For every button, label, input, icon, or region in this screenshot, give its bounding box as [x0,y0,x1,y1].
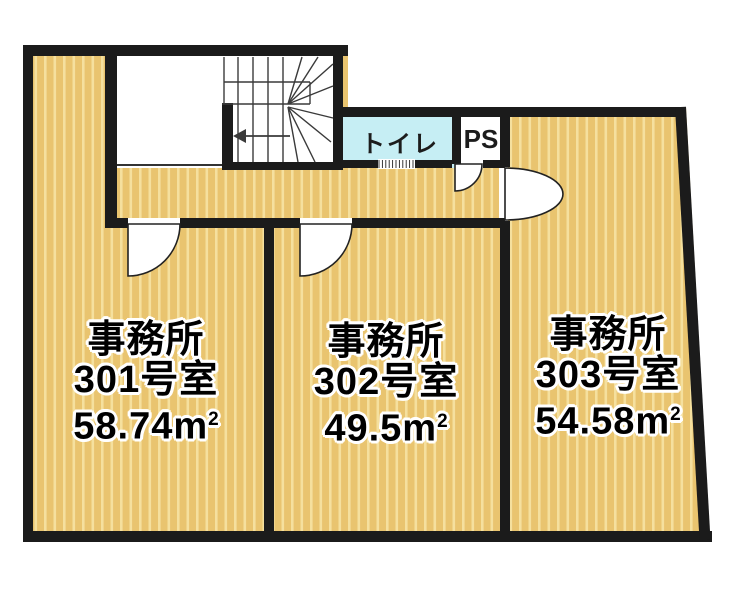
wall-toilet-bottom-right [414,160,452,168]
wall-stairwell-right [333,45,343,168]
floorplan-page: 事務所 301号室 58.74m2 事務所 302号室 49.5m2 事務所 3… [0,0,735,600]
room-301-area: 58.74m2 [26,400,266,447]
ps-label: PS [457,124,505,155]
room-302-number: 302号室 [266,362,506,402]
room-302-area: 49.5m2 [266,402,506,449]
wall-stair-bottom [222,162,343,170]
wall-bottom [23,531,712,542]
floorplan-drawing [0,0,735,600]
wall-hallway-seg1 [105,218,128,228]
room-302-label: 事務所 302号室 49.5m2 [266,322,506,449]
wall-left [23,45,33,542]
room-303-label: 事務所 303号室 54.58m2 [488,315,728,442]
wall-top [23,45,348,56]
toilet-threshold [378,159,415,169]
room-301-number: 301号室 [26,360,266,400]
room-303-type: 事務所 [488,315,728,355]
room-303-number: 303号室 [488,355,728,395]
wall-upper-right-horizontal [338,107,686,117]
wall-stair-inner [222,103,233,167]
room-301-type: 事務所 [26,320,266,360]
wall-room301-stair [105,47,117,228]
wall-hallway-seg3 [352,218,505,228]
wall-toilet-bottom-left [343,160,379,168]
wall-hallway-seg2 [180,218,300,228]
room-302-type: 事務所 [266,322,506,362]
room-301-label: 事務所 301号室 58.74m2 [26,320,266,447]
toilet-label: トイレ [343,124,457,159]
room-303-area: 54.58m2 [488,395,728,442]
